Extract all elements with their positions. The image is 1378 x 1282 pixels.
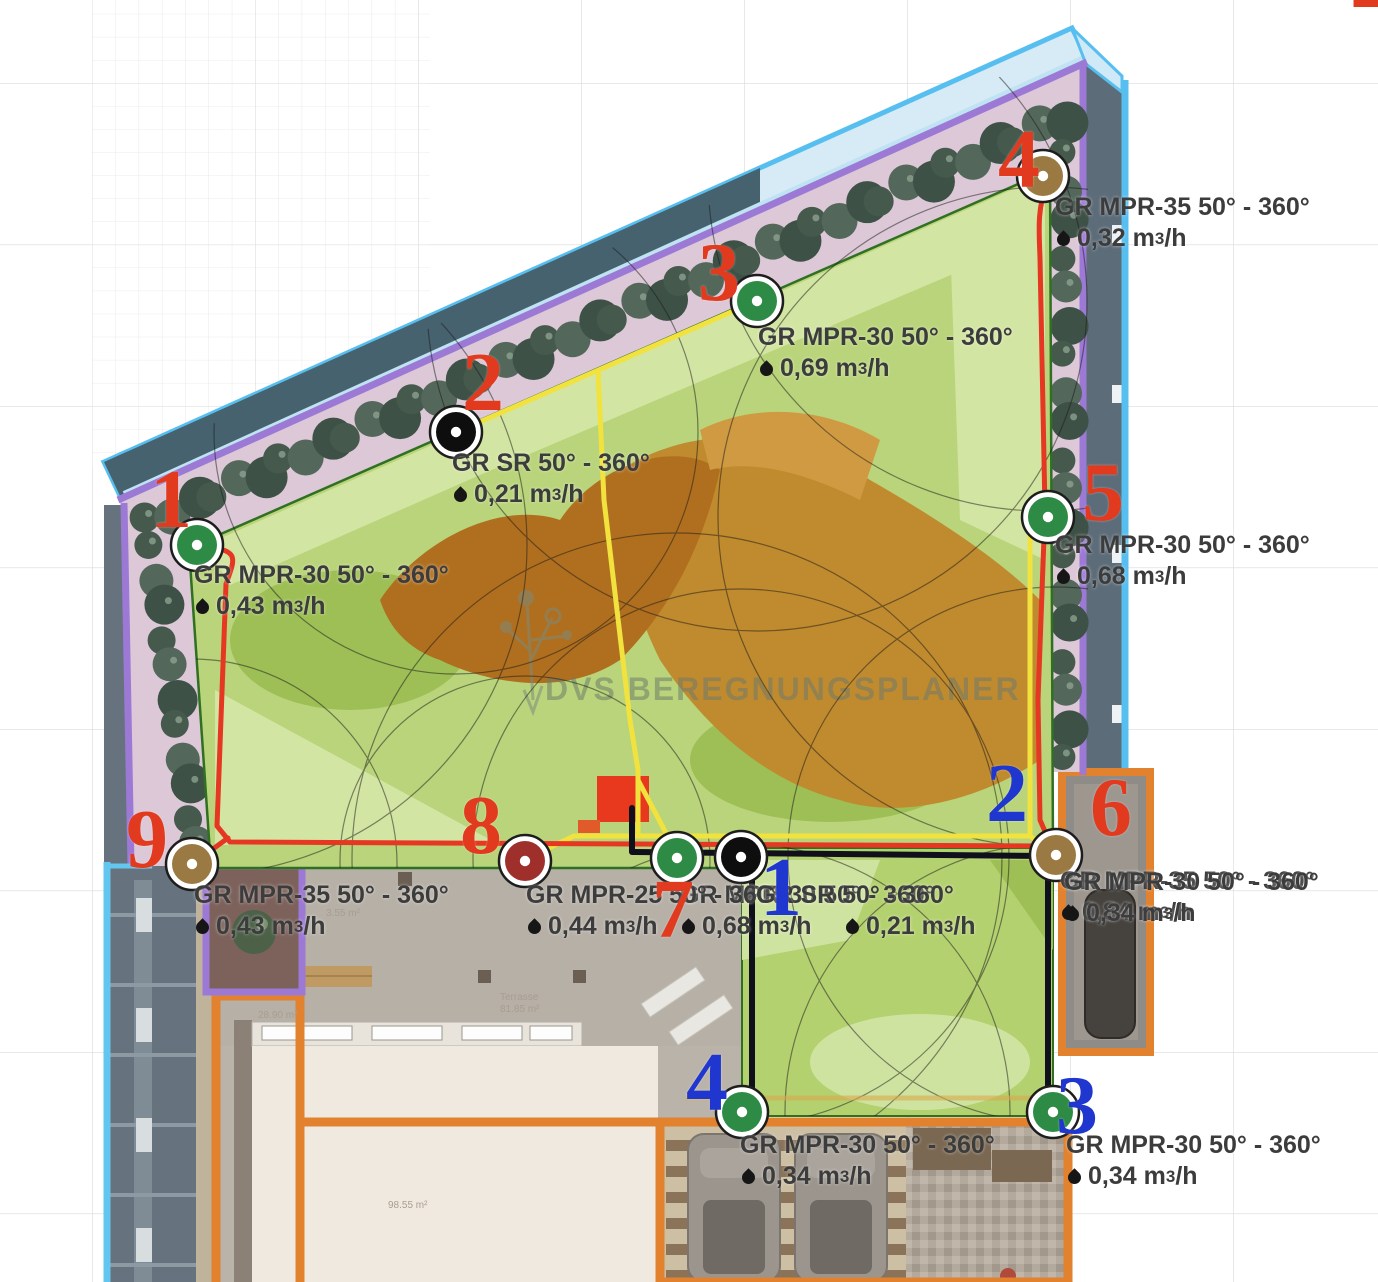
zone-number-blue-3: 3: [1056, 1068, 1098, 1144]
label-blue-4: GR MPR-30 50° - 360° 0,34 m3/h: [740, 1130, 995, 1193]
label-flow: 0,34 m3/h: [1064, 898, 1319, 929]
hall-area: 28.90 m²: [258, 1010, 298, 1021]
droplet-icon: [843, 919, 861, 937]
label-flow: 0,21 m3/h: [452, 479, 650, 510]
label-model: GR MPR-35 50° - 360°: [1055, 192, 1310, 223]
droplet-icon: [451, 487, 469, 505]
droplet-icon: [757, 361, 775, 379]
label-flow: 0,68 m3/h: [1055, 561, 1310, 592]
droplet-icon: [1054, 231, 1072, 249]
droplet-icon: [1065, 1169, 1083, 1187]
droplet-icon: [1054, 569, 1072, 587]
zone-number-blue-4: 4: [686, 1045, 728, 1121]
droplet-icon: [193, 919, 211, 937]
label-red-3: GR MPR-30 50° - 360° 0,69 m3/h: [758, 322, 1013, 385]
label-red-2: GR SR 50° - 360° 0,21 m3/h: [452, 448, 650, 511]
corner-number-fragment: 2: [1350, 0, 1378, 18]
label-flow: 0,21 m3/h: [844, 911, 976, 942]
label-red-4: GR MPR-35 50° - 360° 0,32 m3/h: [1055, 192, 1310, 255]
zone-number-red-5: 5: [1082, 455, 1124, 531]
label-flow: 0,32 m3/h: [1055, 223, 1310, 254]
label-red-5: GR MPR-30 50° - 360° 0,68 m3/h: [1055, 530, 1310, 593]
droplet-icon: [525, 919, 543, 937]
zone-number-red-2: 2: [462, 345, 504, 421]
zone-number-red-8: 8: [460, 788, 502, 864]
terrasse-name: Terrasse: [500, 992, 539, 1003]
zone-number-red-4: 4: [998, 122, 1040, 198]
zone-number-blue-2: 2: [986, 756, 1028, 832]
zone-number-blue-1: 1: [760, 850, 802, 926]
zone-number-red-3: 3: [698, 235, 740, 311]
terrasse-area: 81.85 m²: [500, 1004, 540, 1015]
label-flow: 0,34 m3/h: [1066, 1161, 1321, 1192]
label-flow: 0,43 m3/h: [194, 911, 449, 942]
right-border-band: [1086, 62, 1125, 775]
label-flow: 0,34 m3/h: [740, 1161, 995, 1192]
zone-number-red-6: 6: [1090, 770, 1132, 846]
zone-number-red-1: 1: [150, 462, 192, 538]
label-model: GR MPR-30 50° - 360°: [740, 1130, 995, 1161]
label-model: GR MPR-30 50° - 360°: [1064, 867, 1319, 898]
label-model: GR MPR-35 50° - 360°: [194, 880, 449, 911]
label-blue-2: GR MPR-30 50° - 360° 0,34 m3/h: [1064, 867, 1319, 930]
label-flow: 0,69 m3/h: [758, 353, 1013, 384]
label-red-1: GR MPR-30 50° - 360° 0,43 m3/h: [194, 560, 449, 623]
zone-number-red-7: 7: [652, 872, 694, 948]
label-model: GR MPR-30 50° - 360°: [758, 322, 1013, 353]
irrigation-plan-canvas: Terrasse 81.85 m² 98.55 m² 28.90 m² 3.55…: [0, 0, 1378, 1282]
droplet-icon: [193, 599, 211, 617]
label-model: GR MPR-30 50° - 360°: [1066, 1130, 1321, 1161]
zone-number-red-9: 9: [126, 802, 168, 878]
label-flow: 0,43 m3/h: [194, 591, 449, 622]
room-area: 98.55 m²: [388, 1200, 428, 1211]
house-interior: [252, 1046, 658, 1282]
label-model: GR SR 50° - 360°: [452, 448, 650, 479]
droplet-icon: [739, 1169, 757, 1187]
label-red-9: GR MPR-35 50° - 360° 0,43 m3/h: [194, 880, 449, 943]
droplet-icon: [1063, 906, 1081, 924]
label-blue-3: GR MPR-30 50° - 360° 0,34 m3/h: [1066, 1130, 1321, 1193]
label-model: GR MPR-30 50° - 360°: [194, 560, 449, 591]
